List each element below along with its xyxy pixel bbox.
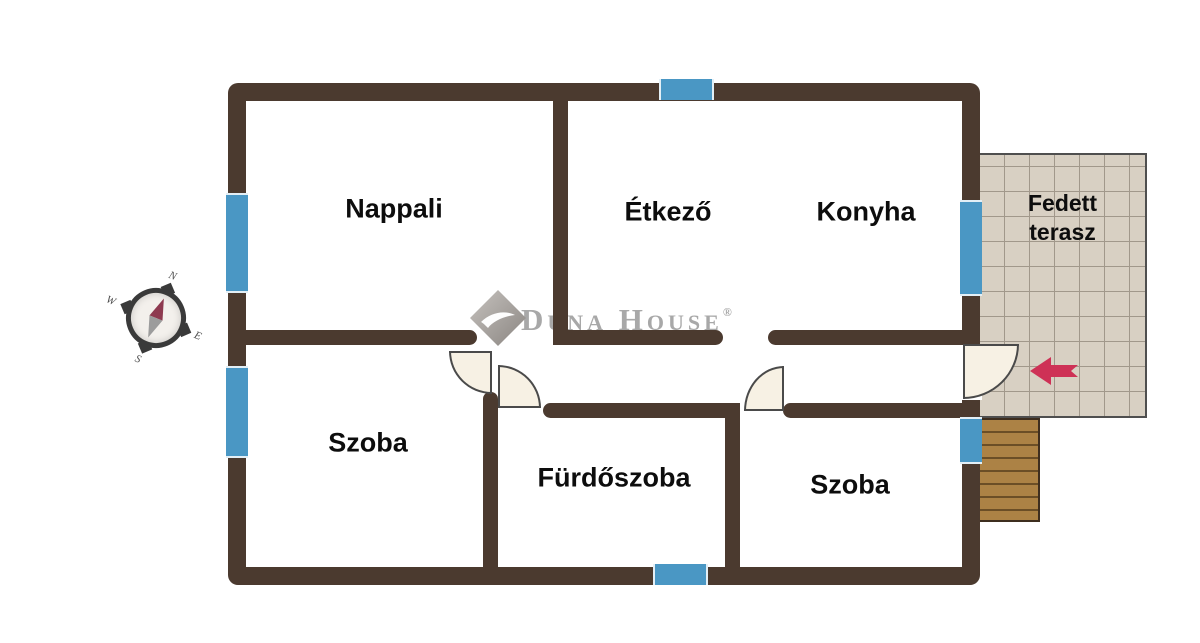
wall-mid-right	[768, 330, 980, 345]
room-label-furdoszoba: Fürdőszoba	[538, 463, 691, 494]
window-bottom-furdoszoba	[653, 564, 708, 585]
wall-hall-furdoszoba	[543, 403, 740, 418]
terasz-line1: Fedett	[980, 189, 1145, 218]
room-label-etkezo: Étkező	[624, 197, 711, 228]
watermark-logo-icon	[467, 287, 529, 349]
window-east-konyha	[960, 200, 982, 296]
terasz-line2: terasz	[980, 218, 1145, 247]
window-west-nappali	[226, 193, 248, 293]
stairs	[978, 418, 1040, 522]
room-label-nappali: Nappali	[345, 194, 443, 225]
floor-plan: Fedett terasz Duna House® Nappali Étkező…	[0, 0, 1200, 643]
compass-icon: N E S W	[107, 269, 206, 368]
compass-letter-e: E	[192, 329, 203, 343]
room-label-konyha: Konyha	[816, 197, 915, 228]
window-west-szoba	[226, 366, 248, 458]
window-top	[659, 79, 714, 100]
wall-szoba-furdoszoba	[483, 392, 498, 570]
wall-hall-szoba-right	[783, 403, 980, 418]
entrance-arrow-icon	[1030, 357, 1078, 385]
compass-letter-s: S	[133, 353, 143, 366]
wall-nappali-etkezo	[553, 95, 568, 345]
wall-mid-left	[228, 330, 477, 345]
room-label-terasz: Fedett terasz	[980, 189, 1145, 247]
wall-mid-center	[553, 330, 723, 345]
window-east-szoba	[960, 417, 982, 464]
compass-letter-n: N	[167, 269, 178, 283]
room-label-szoba-right: Szoba	[810, 470, 890, 501]
compass-letter-w: W	[104, 294, 117, 309]
wall-furdoszoba-szoba	[725, 403, 740, 567]
room-label-szoba-left: Szoba	[328, 428, 408, 459]
